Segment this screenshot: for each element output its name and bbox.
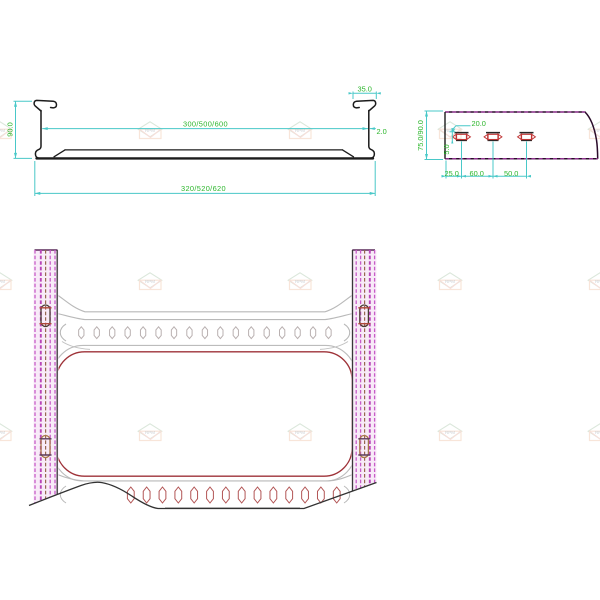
svg-text:50.0: 50.0 — [504, 169, 518, 178]
svg-text:2.0: 2.0 — [377, 127, 387, 136]
svg-text:25.0: 25.0 — [445, 169, 459, 178]
svg-text:60.0: 60.0 — [470, 169, 484, 178]
svg-text:20.0: 20.0 — [472, 119, 486, 128]
svg-text:75.0/90.0: 75.0/90.0 — [416, 120, 425, 151]
svg-text:320/520/620: 320/520/620 — [181, 184, 226, 193]
svg-text:35.0: 35.0 — [358, 85, 372, 94]
svg-text:300/500/600: 300/500/600 — [183, 119, 228, 128]
svg-text:90.0: 90.0 — [6, 122, 15, 136]
svg-text:5.0: 5.0 — [442, 144, 451, 154]
